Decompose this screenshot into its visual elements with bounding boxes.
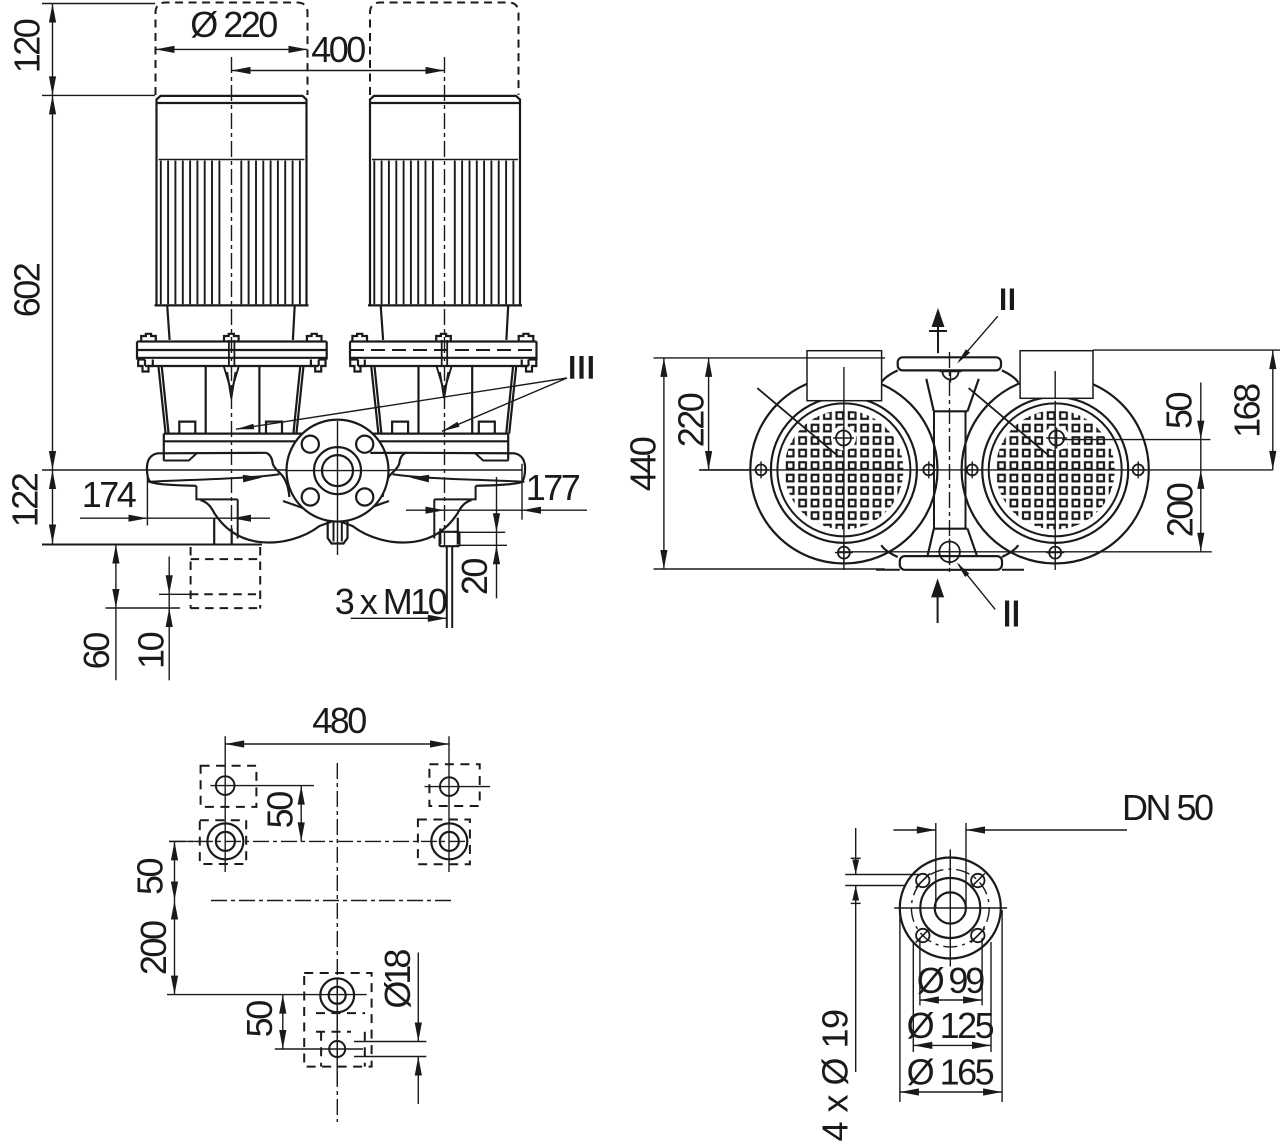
svg-text:10: 10 — [131, 632, 172, 669]
svg-text:50: 50 — [1158, 393, 1199, 430]
svg-text:220: 220 — [671, 393, 712, 447]
svg-text:177: 177 — [526, 467, 580, 508]
svg-text:168: 168 — [1227, 384, 1268, 438]
svg-text:20: 20 — [454, 559, 495, 596]
svg-text:200: 200 — [133, 921, 174, 975]
svg-text:480: 480 — [312, 700, 366, 741]
svg-text:50: 50 — [239, 1001, 280, 1038]
svg-text:440: 440 — [623, 437, 664, 491]
svg-text:4 x Ø 19: 4 x Ø 19 — [814, 1009, 855, 1141]
svg-text:Ø18: Ø18 — [377, 950, 418, 1009]
svg-text:200: 200 — [1159, 483, 1200, 537]
svg-text:122: 122 — [5, 473, 46, 527]
svg-text:Ø 220: Ø 220 — [190, 4, 277, 45]
svg-text:400: 400 — [311, 29, 365, 70]
svg-text:50: 50 — [260, 792, 301, 829]
svg-text:Ø 125: Ø 125 — [907, 1005, 994, 1046]
svg-text:174: 174 — [82, 474, 136, 515]
svg-text:Ø 99: Ø 99 — [917, 960, 984, 1001]
svg-text:120: 120 — [7, 19, 48, 73]
svg-text:60: 60 — [76, 633, 117, 670]
svg-text:Ø 165: Ø 165 — [907, 1052, 994, 1093]
svg-text:DN 50: DN 50 — [1122, 787, 1213, 828]
svg-text:50: 50 — [130, 859, 171, 896]
svg-text:602: 602 — [7, 263, 48, 317]
